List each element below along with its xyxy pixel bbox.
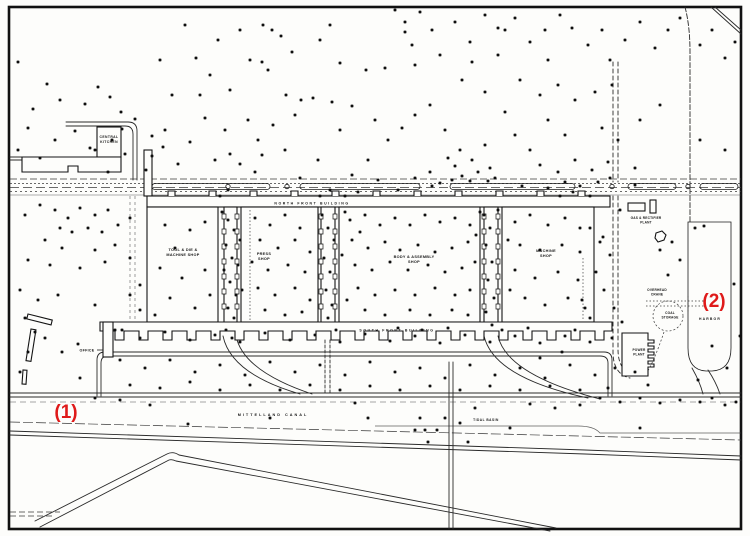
impact-dot: [264, 332, 267, 335]
impact-dot: [162, 146, 165, 149]
impact-dot: [79, 207, 82, 210]
impact-dot: [244, 374, 247, 377]
impact-dot: [494, 177, 497, 180]
impact-dot: [351, 239, 354, 242]
impact-dot: [429, 314, 432, 317]
impact-dot: [497, 209, 500, 212]
impact-dot: [219, 195, 222, 198]
impact-dot: [527, 327, 530, 330]
impact-dot: [599, 241, 602, 244]
impact-dot: [401, 127, 404, 130]
impact-dot: [634, 371, 637, 374]
impact-dot: [434, 251, 437, 254]
north-front-building: [147, 196, 610, 207]
impact-dot: [529, 214, 532, 217]
impact-dot: [564, 335, 567, 338]
impact-dot: [339, 341, 342, 344]
impact-dot: [467, 241, 470, 244]
impact-dot: [94, 149, 97, 152]
impact-dot: [154, 314, 157, 317]
impact-dot: [17, 149, 20, 152]
impact-dot: [474, 261, 477, 264]
impact-dot: [639, 397, 642, 400]
impact-dot: [331, 304, 334, 307]
impact-dot: [671, 241, 674, 244]
impact-dot: [94, 304, 97, 307]
impact-dot: [299, 177, 302, 180]
impact-dot: [46, 83, 49, 86]
impact-dot: [284, 149, 287, 152]
impact-dot: [159, 387, 162, 390]
impact-dot: [624, 39, 627, 42]
impact-dot: [609, 177, 612, 180]
impact-dot: [319, 195, 322, 198]
impact-dot: [427, 264, 430, 267]
impact-dot: [181, 277, 184, 280]
impact-dot: [164, 224, 167, 227]
impact-dot: [333, 239, 336, 242]
impact-dot: [354, 264, 357, 267]
impact-dot: [454, 21, 457, 24]
impact-dot: [339, 62, 342, 65]
impact-dot: [335, 329, 338, 332]
impact-dot: [27, 127, 30, 130]
impact-dot: [475, 234, 478, 237]
impact-dot: [539, 357, 542, 360]
impact-dot: [734, 41, 737, 44]
impact-dot: [611, 84, 614, 87]
impact-dot: [129, 294, 132, 297]
impact-dot: [235, 294, 238, 297]
impact-dot: [547, 59, 550, 62]
impact-dot: [271, 29, 274, 32]
impact-dot: [184, 24, 187, 27]
impact-dot: [647, 384, 650, 387]
impact-dot: [514, 221, 517, 224]
impact-dot: [357, 191, 360, 194]
impact-dot: [444, 129, 447, 132]
impact-dot: [485, 311, 488, 314]
impact-dot: [594, 374, 597, 377]
impact-dot: [367, 417, 370, 420]
impact-dot: [561, 244, 564, 247]
impact-dot: [204, 117, 207, 120]
impact-dot: [564, 134, 567, 137]
impact-dot: [699, 139, 702, 142]
impact-dot: [414, 114, 417, 117]
impact-dot: [124, 153, 127, 156]
impact-dot: [32, 108, 35, 111]
impact-dot: [364, 333, 367, 336]
impact-dot: [469, 364, 472, 367]
impact-dot: [471, 61, 474, 64]
impact-dot: [447, 157, 450, 160]
impact-dot: [319, 364, 322, 367]
impact-dot: [357, 287, 360, 290]
impact-dot: [37, 299, 40, 302]
impact-dot: [59, 227, 62, 230]
impact-dot: [484, 91, 487, 94]
impact-dot: [439, 182, 442, 185]
impact-dot: [44, 239, 47, 242]
impact-dot: [339, 129, 342, 132]
impact-dot: [589, 227, 592, 230]
impact-dot: [67, 217, 70, 220]
impact-dot: [489, 227, 492, 230]
impact-dot: [231, 257, 234, 260]
impact-dot: [711, 397, 714, 400]
impact-dot: [735, 401, 738, 404]
impact-dot: [54, 209, 57, 212]
impact-dot: [121, 128, 124, 131]
impact-dot: [219, 364, 222, 367]
impact-dot: [459, 422, 462, 425]
impact-dot: [607, 161, 610, 164]
impact-dot: [429, 104, 432, 107]
impact-dot: [294, 371, 297, 374]
impact-dot: [233, 317, 236, 320]
impact-dot: [429, 385, 432, 388]
impact-dot: [484, 14, 487, 17]
impact-dot: [394, 371, 397, 374]
impact-dot: [427, 441, 430, 444]
impact-dot: [539, 342, 542, 345]
impact-dot: [454, 294, 457, 297]
impact-dot: [323, 257, 326, 260]
impact-dot: [61, 247, 64, 250]
impact-dot: [237, 264, 240, 267]
impact-dot: [284, 314, 287, 317]
impact-dot: [317, 159, 320, 162]
impact-dot: [341, 254, 344, 257]
impact-dot: [539, 94, 542, 97]
impact-dot: [597, 181, 600, 184]
impact-dot: [224, 129, 227, 132]
impact-dot: [589, 195, 592, 198]
impact-dot: [489, 167, 492, 170]
impact-dot: [367, 159, 370, 162]
impact-dot: [469, 289, 472, 292]
impact-dot: [497, 27, 500, 30]
impact-dot: [497, 54, 500, 57]
impact-dot: [419, 367, 422, 370]
impact-dot: [454, 217, 457, 220]
impact-dot: [97, 86, 100, 89]
impact-dot: [504, 111, 507, 114]
impact-dot: [221, 211, 224, 214]
impact-dot: [574, 99, 577, 102]
impact-dot: [494, 374, 497, 377]
impact-dot: [351, 174, 354, 177]
impact-dot: [726, 367, 729, 370]
impact-dot: [451, 179, 454, 182]
impact-dot: [559, 195, 562, 198]
impact-dot: [117, 224, 120, 227]
impact-dot: [284, 214, 287, 217]
impact-dot: [139, 284, 142, 287]
impact-dot: [349, 219, 352, 222]
impact-dot: [424, 429, 427, 432]
impact-dot: [219, 389, 222, 392]
impact-dot: [417, 244, 420, 247]
map-label-tidal-basin: TIDAL BASIN: [473, 418, 499, 422]
impact-dot: [223, 269, 226, 272]
impact-dot: [301, 311, 304, 314]
impact-dot: [239, 29, 242, 32]
impact-dot: [249, 384, 252, 387]
impact-dot: [151, 155, 154, 158]
impact-dot: [634, 167, 637, 170]
impact-dot: [659, 402, 662, 405]
impact-dot: [491, 261, 494, 264]
impact-dot: [344, 195, 347, 198]
impact-dot: [539, 164, 542, 167]
impact-dot: [404, 31, 407, 34]
impact-dot: [739, 335, 742, 338]
impact-dot: [559, 14, 562, 17]
impact-dot: [414, 294, 417, 297]
impact-dot: [254, 217, 257, 220]
impact-dot: [187, 423, 190, 426]
impact-dot: [289, 339, 292, 342]
impact-dot: [439, 54, 442, 57]
annotation-marker-2: (2): [702, 291, 725, 312]
map-label-power-plant: POWERPLANT: [632, 348, 646, 357]
impact-dot: [487, 180, 490, 183]
impact-dot: [599, 397, 602, 400]
impact-dot: [654, 47, 657, 50]
impact-dot: [595, 271, 598, 274]
impact-dot: [679, 17, 682, 20]
impact-dot: [27, 259, 30, 262]
impact-dot: [369, 385, 372, 388]
impact-dot: [241, 289, 244, 292]
impact-dot: [514, 335, 517, 338]
impact-dot: [261, 61, 264, 64]
impact-dot: [564, 217, 567, 220]
impact-dot: [483, 214, 486, 217]
impact-dot: [217, 39, 220, 42]
impact-dot: [247, 119, 250, 122]
impact-dot: [519, 389, 522, 392]
impact-dot: [459, 149, 462, 152]
impact-dot: [557, 271, 560, 274]
map-label-north-front-building: NORTH FRONT BUILDING: [274, 201, 349, 205]
impact-dot: [189, 381, 192, 384]
impact-dot: [454, 165, 457, 168]
impact-dot: [359, 231, 362, 234]
impact-dot: [419, 11, 422, 14]
gas-plant-tower: [650, 200, 656, 213]
impact-dot: [444, 271, 447, 274]
impact-dot: [377, 179, 380, 182]
impact-dot: [667, 274, 670, 277]
impact-dot: [619, 401, 622, 404]
impact-dot: [139, 337, 142, 340]
impact-dot: [274, 294, 277, 297]
impact-dot: [24, 214, 27, 217]
impact-dot: [574, 329, 577, 332]
impact-dot: [309, 384, 312, 387]
impact-dot: [589, 341, 592, 344]
impact-dot: [379, 224, 382, 227]
impact-dot: [579, 227, 582, 230]
impact-dot: [71, 231, 74, 234]
impact-dot: [587, 44, 590, 47]
impact-dot: [581, 299, 584, 302]
impact-dot: [364, 309, 367, 312]
impact-dot: [489, 385, 492, 388]
impact-dot: [564, 181, 567, 184]
impact-dot: [94, 397, 97, 400]
impact-dot: [549, 385, 552, 388]
impact-dot: [514, 269, 517, 272]
impact-dot: [189, 339, 192, 342]
impact-dot: [314, 334, 317, 337]
impact-dot: [479, 211, 482, 214]
impact-dot: [79, 267, 82, 270]
impact-dot: [89, 147, 92, 150]
impact-dot: [87, 227, 90, 230]
impact-dot: [589, 317, 592, 320]
impact-dot: [394, 9, 397, 12]
impact-dot: [679, 399, 682, 402]
impact-dot: [169, 297, 172, 300]
impact-dot: [697, 379, 700, 382]
impact-dot: [367, 247, 370, 250]
impact-dot: [467, 441, 470, 444]
impact-dot: [195, 57, 198, 60]
impact-dot: [509, 289, 512, 292]
impact-dot: [214, 334, 217, 337]
impact-dot: [214, 159, 217, 162]
impact-dot: [711, 29, 714, 32]
impact-dot: [724, 149, 727, 152]
impact-dot: [409, 309, 412, 312]
impact-dot: [534, 277, 537, 280]
impact-dot: [407, 269, 410, 272]
impact-dot: [199, 94, 202, 97]
impact-dot: [365, 69, 368, 72]
impact-dot: [321, 214, 324, 217]
impact-dot: [459, 389, 462, 392]
impact-dot: [227, 307, 230, 310]
impact-dot: [285, 94, 288, 97]
impact-dot: [487, 279, 490, 282]
impact-dot: [262, 24, 265, 27]
impact-dot: [309, 299, 312, 302]
impact-dot: [384, 67, 387, 70]
impact-dot: [519, 79, 522, 82]
impact-dot: [209, 74, 212, 77]
impact-dot: [431, 29, 434, 32]
impact-dot: [277, 247, 280, 250]
impact-dot: [404, 21, 407, 24]
impact-dot: [57, 294, 60, 297]
impact-dot: [304, 271, 307, 274]
impact-dot: [609, 59, 612, 62]
impact-dot: [239, 163, 242, 166]
impact-dot: [129, 217, 132, 220]
impact-dot: [319, 39, 322, 42]
impact-dot: [149, 404, 152, 407]
impact-dot: [477, 171, 480, 174]
impact-dot: [557, 84, 560, 87]
impact-dot: [601, 127, 604, 130]
small-structure: [655, 231, 666, 242]
impact-dot: [489, 341, 492, 344]
impact-dot: [279, 389, 282, 392]
impact-dot: [120, 111, 123, 114]
impact-dot: [679, 259, 682, 262]
impact-dot: [424, 214, 427, 217]
impact-dot: [439, 221, 442, 224]
impact-dot: [547, 119, 550, 122]
impact-dot: [374, 119, 377, 122]
impact-dot: [209, 294, 212, 297]
impact-dot: [609, 254, 612, 257]
impact-dot: [344, 211, 347, 214]
impact-dot: [294, 287, 297, 290]
impact-dot: [159, 59, 162, 62]
impact-dot: [577, 279, 580, 282]
impact-dot: [309, 251, 312, 254]
impact-dot: [325, 289, 328, 292]
impact-dot: [544, 377, 547, 380]
impact-dot: [561, 351, 564, 354]
impact-dot: [189, 229, 192, 232]
impact-dot: [699, 401, 702, 404]
impact-dot: [344, 374, 347, 377]
impact-dot: [601, 29, 604, 32]
bomb-plot-map-page: CENTRALKITCHENNORTH FRONT BUILDINGTOOL &…: [0, 0, 750, 536]
map-label-south-front-building: SOUTH FRONT BUILDING: [359, 328, 434, 332]
impact-dot: [229, 281, 232, 284]
impact-dot: [164, 331, 167, 334]
impact-dot: [711, 345, 714, 348]
impact-dot: [621, 321, 624, 324]
map-label-tool-die-machine-shop: TOOL & DIE &MACHINE SHOP: [166, 248, 199, 257]
impact-dot: [467, 314, 470, 317]
impact-dot: [514, 134, 517, 137]
impact-dot: [574, 159, 577, 162]
impact-dot: [569, 364, 572, 367]
impact-dot: [733, 283, 736, 286]
impact-dot: [544, 29, 547, 32]
impact-dot: [257, 287, 260, 290]
impact-dot: [414, 64, 417, 67]
impact-dot: [414, 429, 417, 432]
impact-dot: [139, 309, 142, 312]
impact-dot: [471, 159, 474, 162]
impact-dot: [251, 261, 254, 264]
impact-dot: [493, 297, 496, 300]
impact-dot: [269, 417, 272, 420]
map-label-mittelland-canal: MITTELLAND CANAL: [238, 413, 309, 417]
impact-dot: [521, 185, 524, 188]
impact-dot: [461, 79, 464, 82]
impact-dot: [389, 261, 392, 264]
impact-dot: [312, 97, 315, 100]
impact-dot: [571, 27, 574, 30]
impact-dot: [699, 44, 702, 47]
impact-dot: [451, 309, 454, 312]
impact-dot: [300, 99, 303, 102]
impact-dot: [119, 359, 122, 362]
impact-dot: [703, 225, 706, 228]
impact-dot: [554, 407, 557, 410]
impact-dot: [469, 180, 472, 183]
